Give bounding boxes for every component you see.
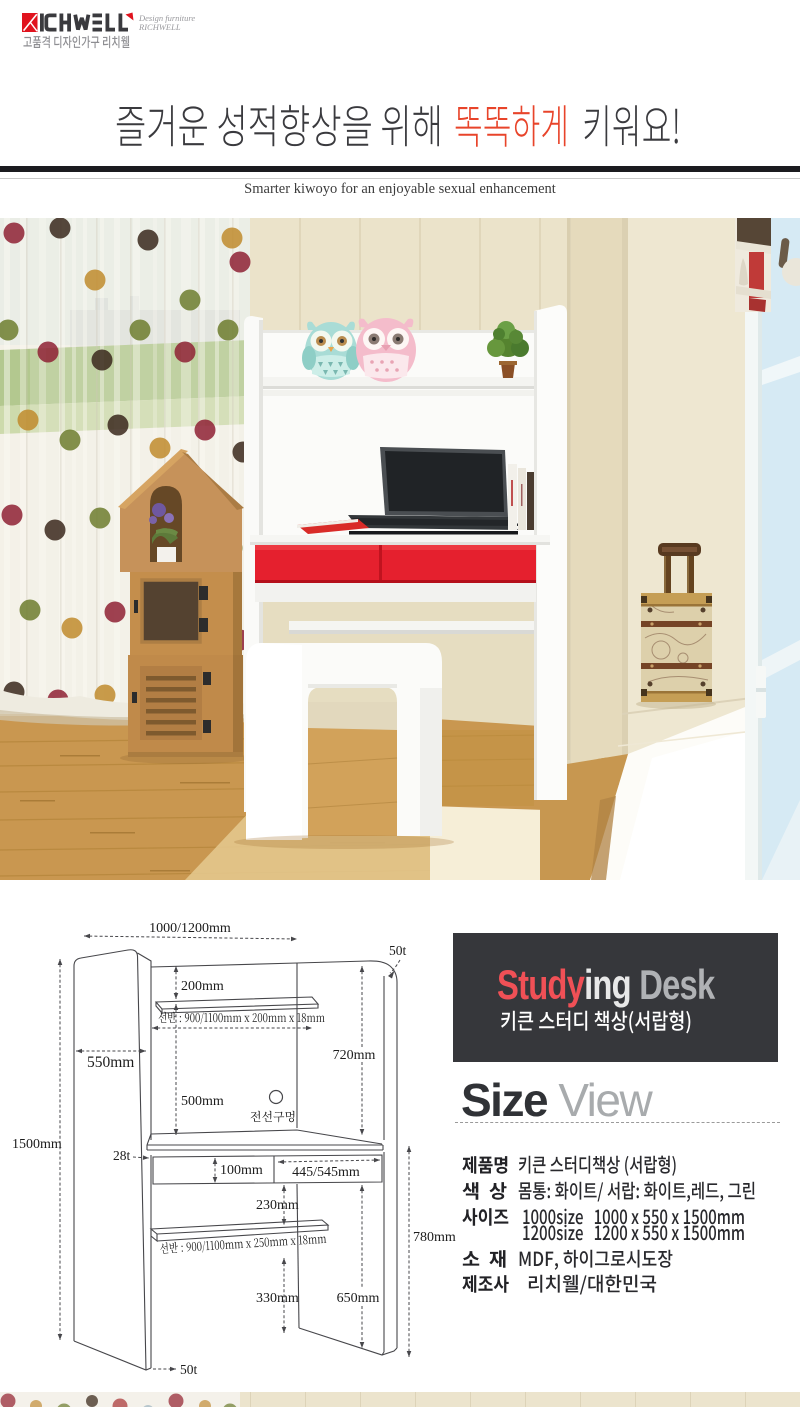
svg-text:50t: 50t	[180, 1362, 198, 1377]
svg-text:550mm: 550mm	[87, 1054, 134, 1071]
svg-text:230mm: 230mm	[256, 1198, 299, 1213]
svg-text:650mm: 650mm	[337, 1291, 380, 1306]
svg-text:200mm: 200mm	[181, 979, 224, 994]
svg-text:28t: 28t	[113, 1148, 131, 1163]
svg-text:1000/1200mm: 1000/1200mm	[149, 921, 231, 936]
svg-text:720mm: 720mm	[333, 1048, 376, 1063]
svg-text:445/545mm: 445/545mm	[292, 1165, 360, 1180]
svg-text:330mm: 330mm	[256, 1291, 299, 1306]
svg-text:50t: 50t	[389, 943, 407, 958]
svg-text:100mm: 100mm	[220, 1163, 263, 1178]
svg-text:1500mm: 1500mm	[12, 1137, 62, 1152]
svg-text:500mm: 500mm	[181, 1094, 224, 1109]
